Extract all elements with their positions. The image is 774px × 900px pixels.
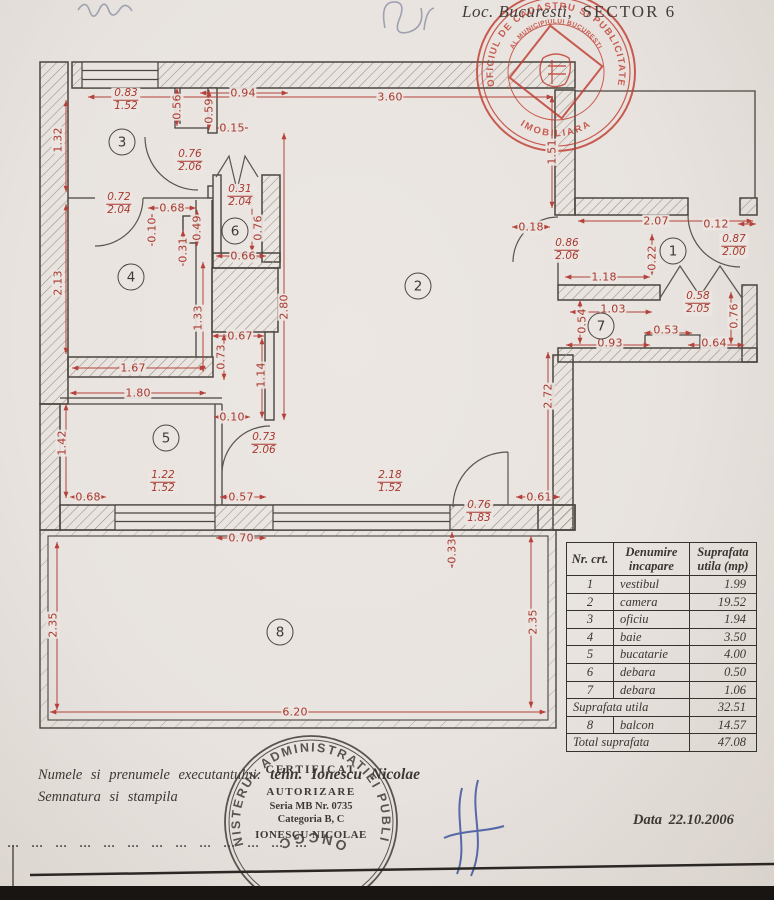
location-line: Loc. Bucuresti, SECTOR 6 <box>462 2 676 22</box>
dim-label: 0.94 <box>229 87 256 100</box>
dim-label: 1.51 <box>546 138 559 165</box>
table-row: 6debara0.50 <box>567 663 757 681</box>
dim-label: 0.18 <box>517 221 544 234</box>
dim-label: 0.70 <box>227 532 254 545</box>
room-number: 1 <box>660 238 687 265</box>
table-row: 1vestibul1.99 <box>567 576 757 594</box>
dim-label: 0.66 <box>229 250 256 263</box>
door-size-label: 0.582.05 <box>683 291 712 316</box>
dim-label: 2.72 <box>542 382 555 409</box>
handwriting-marks <box>78 2 434 33</box>
table-row: 3oficiu1.94 <box>567 611 757 629</box>
door-size-label: 0.722.04 <box>104 192 133 217</box>
dim-label: 0.10 <box>146 216 159 243</box>
dim-label: 3.60 <box>376 91 403 104</box>
dim-label: 2.13 <box>52 269 65 296</box>
stamp-center-line: Categoria B, C <box>226 814 396 825</box>
dim-label: 0.76 <box>252 214 265 241</box>
door-size-label: 2.181.52 <box>375 470 404 495</box>
dim-label: 2.07 <box>642 215 669 228</box>
dim-label: 0.22 <box>646 244 659 271</box>
door-size-label: 1.221.52 <box>148 470 177 495</box>
door-size-label: 0.872.00 <box>719 234 748 259</box>
dim-label: 0.53 <box>652 324 679 337</box>
table-row: 8balcon14.57 <box>567 716 757 734</box>
col-name: Denumire incapare <box>614 543 690 576</box>
dim-label: 0.33 <box>446 537 459 564</box>
stamp-center-line: AUTORIZARE <box>226 786 396 798</box>
stamp-center-line: IONESCU NICOLAE <box>226 829 396 841</box>
door-size-label: 0.762.06 <box>175 149 204 174</box>
red-stamp-inner-text: AL MUNICIPIULUI BUCURESTI <box>509 18 603 50</box>
dim-label: 0.76 <box>728 302 741 329</box>
dim-label: 2.35 <box>527 608 540 635</box>
door-size-label: 0.312.04 <box>225 184 254 209</box>
dim-label: 2.80 <box>278 293 291 320</box>
table-row: 2camera19.52 <box>567 593 757 611</box>
area-table: Nr. crt. Denumire incapare Suprafata uti… <box>566 542 757 752</box>
door-size-label: 0.732.06 <box>249 432 278 457</box>
dim-label: 1.80 <box>124 387 151 400</box>
dim-label: 0.49 <box>191 214 204 241</box>
floorplan-photo: OFICIUL DE CADASTRU SI PUBLICITATE IMOBI… <box>0 0 774 900</box>
room-number: 5 <box>153 425 180 452</box>
date-line: Data 22.10.2006 <box>633 812 746 829</box>
table-header-row: Nr. crt. Denumire incapare Suprafata uti… <box>567 543 757 576</box>
balcony-walls <box>40 530 556 728</box>
dim-label: 0.61 <box>525 491 552 504</box>
dim-label: 6.20 <box>281 706 308 719</box>
location-prefix: Loc. Bucuresti, <box>462 2 572 21</box>
dim-label: 0.12 <box>702 218 729 231</box>
table-row: 7debara1.06 <box>567 681 757 699</box>
dim-label: 1.42 <box>56 429 69 456</box>
dim-label: 0.54 <box>576 307 589 334</box>
stamp-center-line: CERTIFICAT <box>226 764 396 776</box>
door-size-label: 0.831.52 <box>111 88 140 113</box>
dim-label: 2.35 <box>47 611 60 638</box>
dim-label: 0.31 <box>177 236 190 263</box>
dim-label: 1.32 <box>52 126 65 153</box>
dim-label: 0.64 <box>700 337 727 350</box>
stamp-center-line: Seria MB Nr. 0735 <box>226 801 396 812</box>
svg-text:AL MUNICIPIULUI BUCURESTI: AL MUNICIPIULUI BUCURESTI <box>509 18 603 50</box>
col-area: Suprafata utila (mp) <box>689 543 756 576</box>
room-number: 6 <box>222 218 249 245</box>
room-number: 8 <box>267 619 294 646</box>
dim-label: 0.56 <box>171 93 184 120</box>
location-sector: SECTOR 6 <box>583 2 677 21</box>
dim-label: 0.68 <box>74 491 101 504</box>
room-number: 4 <box>118 264 145 291</box>
dim-label: 1.33 <box>192 304 205 331</box>
walls <box>40 62 757 530</box>
room-number: 2 <box>405 273 432 300</box>
dim-label: 0.10 <box>218 411 245 424</box>
dim-label: 0.59 <box>203 97 216 124</box>
table-row: Total suprafata47.08 <box>567 734 757 752</box>
table-row: 4baie3.50 <box>567 628 757 646</box>
room-number: 3 <box>109 129 136 156</box>
dim-label: 1.18 <box>590 271 617 284</box>
dim-label: 0.15 <box>218 122 245 135</box>
dim-label: 1.14 <box>255 361 268 388</box>
col-nr: Nr. crt. <box>567 543 614 576</box>
signature-strokes <box>444 780 504 876</box>
dim-label: 0.67 <box>226 330 253 343</box>
door-size-label: 0.862.06 <box>552 238 581 263</box>
dim-label: 0.68 <box>158 202 185 215</box>
table-row: Suprafata utila32.51 <box>567 699 757 717</box>
dim-label: 0.57 <box>227 491 254 504</box>
room-number: 7 <box>588 313 615 340</box>
dim-label: 1.67 <box>119 362 146 375</box>
table-row: 5bucatarie4.00 <box>567 646 757 664</box>
door-size-label: 0.761.83 <box>464 500 493 525</box>
signature-label: Semnatura si stampila <box>38 789 178 806</box>
dim-label: 0.73 <box>215 343 228 370</box>
